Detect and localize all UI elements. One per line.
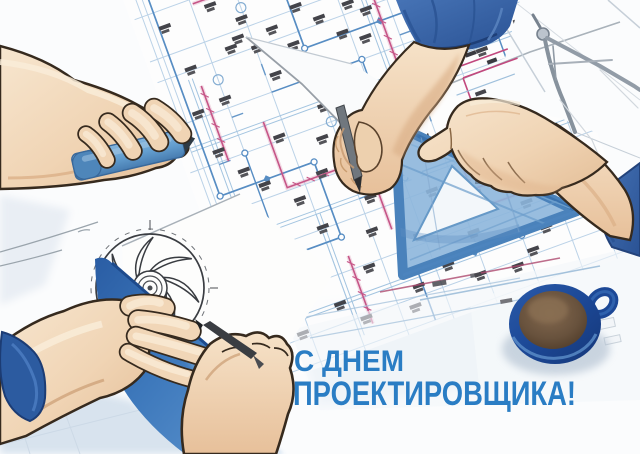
svg-text:С ДНЕМ: С ДНЕМ	[294, 345, 404, 378]
svg-text:ПРОЕКТИРОВЩИКА!: ПРОЕКТИРОВЩИКА!	[293, 375, 576, 413]
